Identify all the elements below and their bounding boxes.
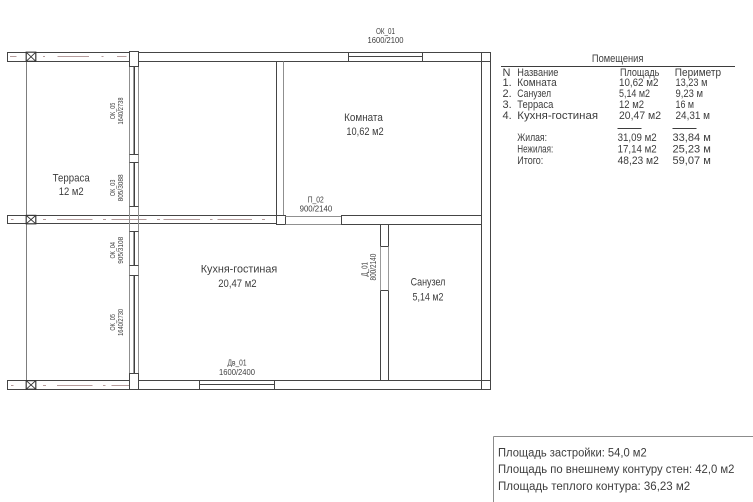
svg-text:Площадь по внешнему контуру ст: Площадь по внешнему контуру стен: 42,0 м… (498, 464, 734, 476)
svg-text:ОК_05: ОК_05 (110, 314, 117, 331)
svg-text:20,47 м2: 20,47 м2 (218, 278, 256, 290)
svg-text:1600/2100: 1600/2100 (368, 35, 404, 45)
svg-text:20,47 м2: 20,47 м2 (619, 110, 661, 122)
svg-text:Итого:: Итого: (517, 155, 543, 167)
svg-text:Площадь теплого контура: 36,23: Площадь теплого контура: 36,23 м2 (498, 481, 690, 493)
svg-text:Комната: Комната (344, 112, 383, 124)
svg-text:31,09 м2: 31,09 м2 (618, 132, 657, 144)
svg-text:25,23 м: 25,23 м (673, 143, 711, 155)
svg-text:Площадь застройки: 54,0 м2: Площадь застройки: 54,0 м2 (498, 448, 647, 460)
svg-text:1600/2400: 1600/2400 (219, 367, 255, 377)
svg-text:Дв_01: Дв_01 (228, 358, 247, 368)
svg-text:10,62 м2: 10,62 м2 (346, 126, 383, 138)
svg-text:Кухня-гостиная: Кухня-гостиная (201, 264, 278, 276)
svg-text:4.: 4. (503, 110, 512, 122)
svg-text:1640/2730: 1640/2730 (118, 309, 125, 336)
svg-text:ОК_03: ОК_03 (110, 180, 117, 197)
svg-text:Жилая:: Жилая: (517, 132, 547, 144)
svg-text:Кухня-гостиная: Кухня-гостиная (517, 110, 598, 122)
svg-text:ОК_05: ОК_05 (110, 103, 117, 120)
svg-text:Помещения: Помещения (592, 53, 644, 65)
svg-text:48,23 м2: 48,23 м2 (618, 155, 659, 167)
svg-text:900/2140: 900/2140 (300, 203, 333, 213)
svg-text:5,14 м2: 5,14 м2 (413, 291, 444, 303)
svg-text:905/3108: 905/3108 (118, 237, 125, 264)
svg-text:17,14 м2: 17,14 м2 (618, 143, 657, 155)
svg-text:Терраса: Терраса (53, 172, 91, 184)
svg-text:Санузел: Санузел (411, 276, 446, 288)
svg-text:ОК_04: ОК_04 (110, 242, 117, 259)
svg-text:800/2140: 800/2140 (368, 253, 378, 280)
svg-text:33,84 м: 33,84 м (673, 132, 711, 144)
svg-text:805/3088: 805/3088 (118, 174, 125, 201)
svg-text:Нежилая:: Нежилая: (517, 143, 553, 155)
svg-text:24,31 м: 24,31 м (676, 110, 711, 122)
svg-text:12 м2: 12 м2 (59, 186, 84, 198)
svg-text:59,07 м: 59,07 м (673, 155, 711, 167)
svg-text:1640/2738: 1640/2738 (118, 97, 125, 124)
